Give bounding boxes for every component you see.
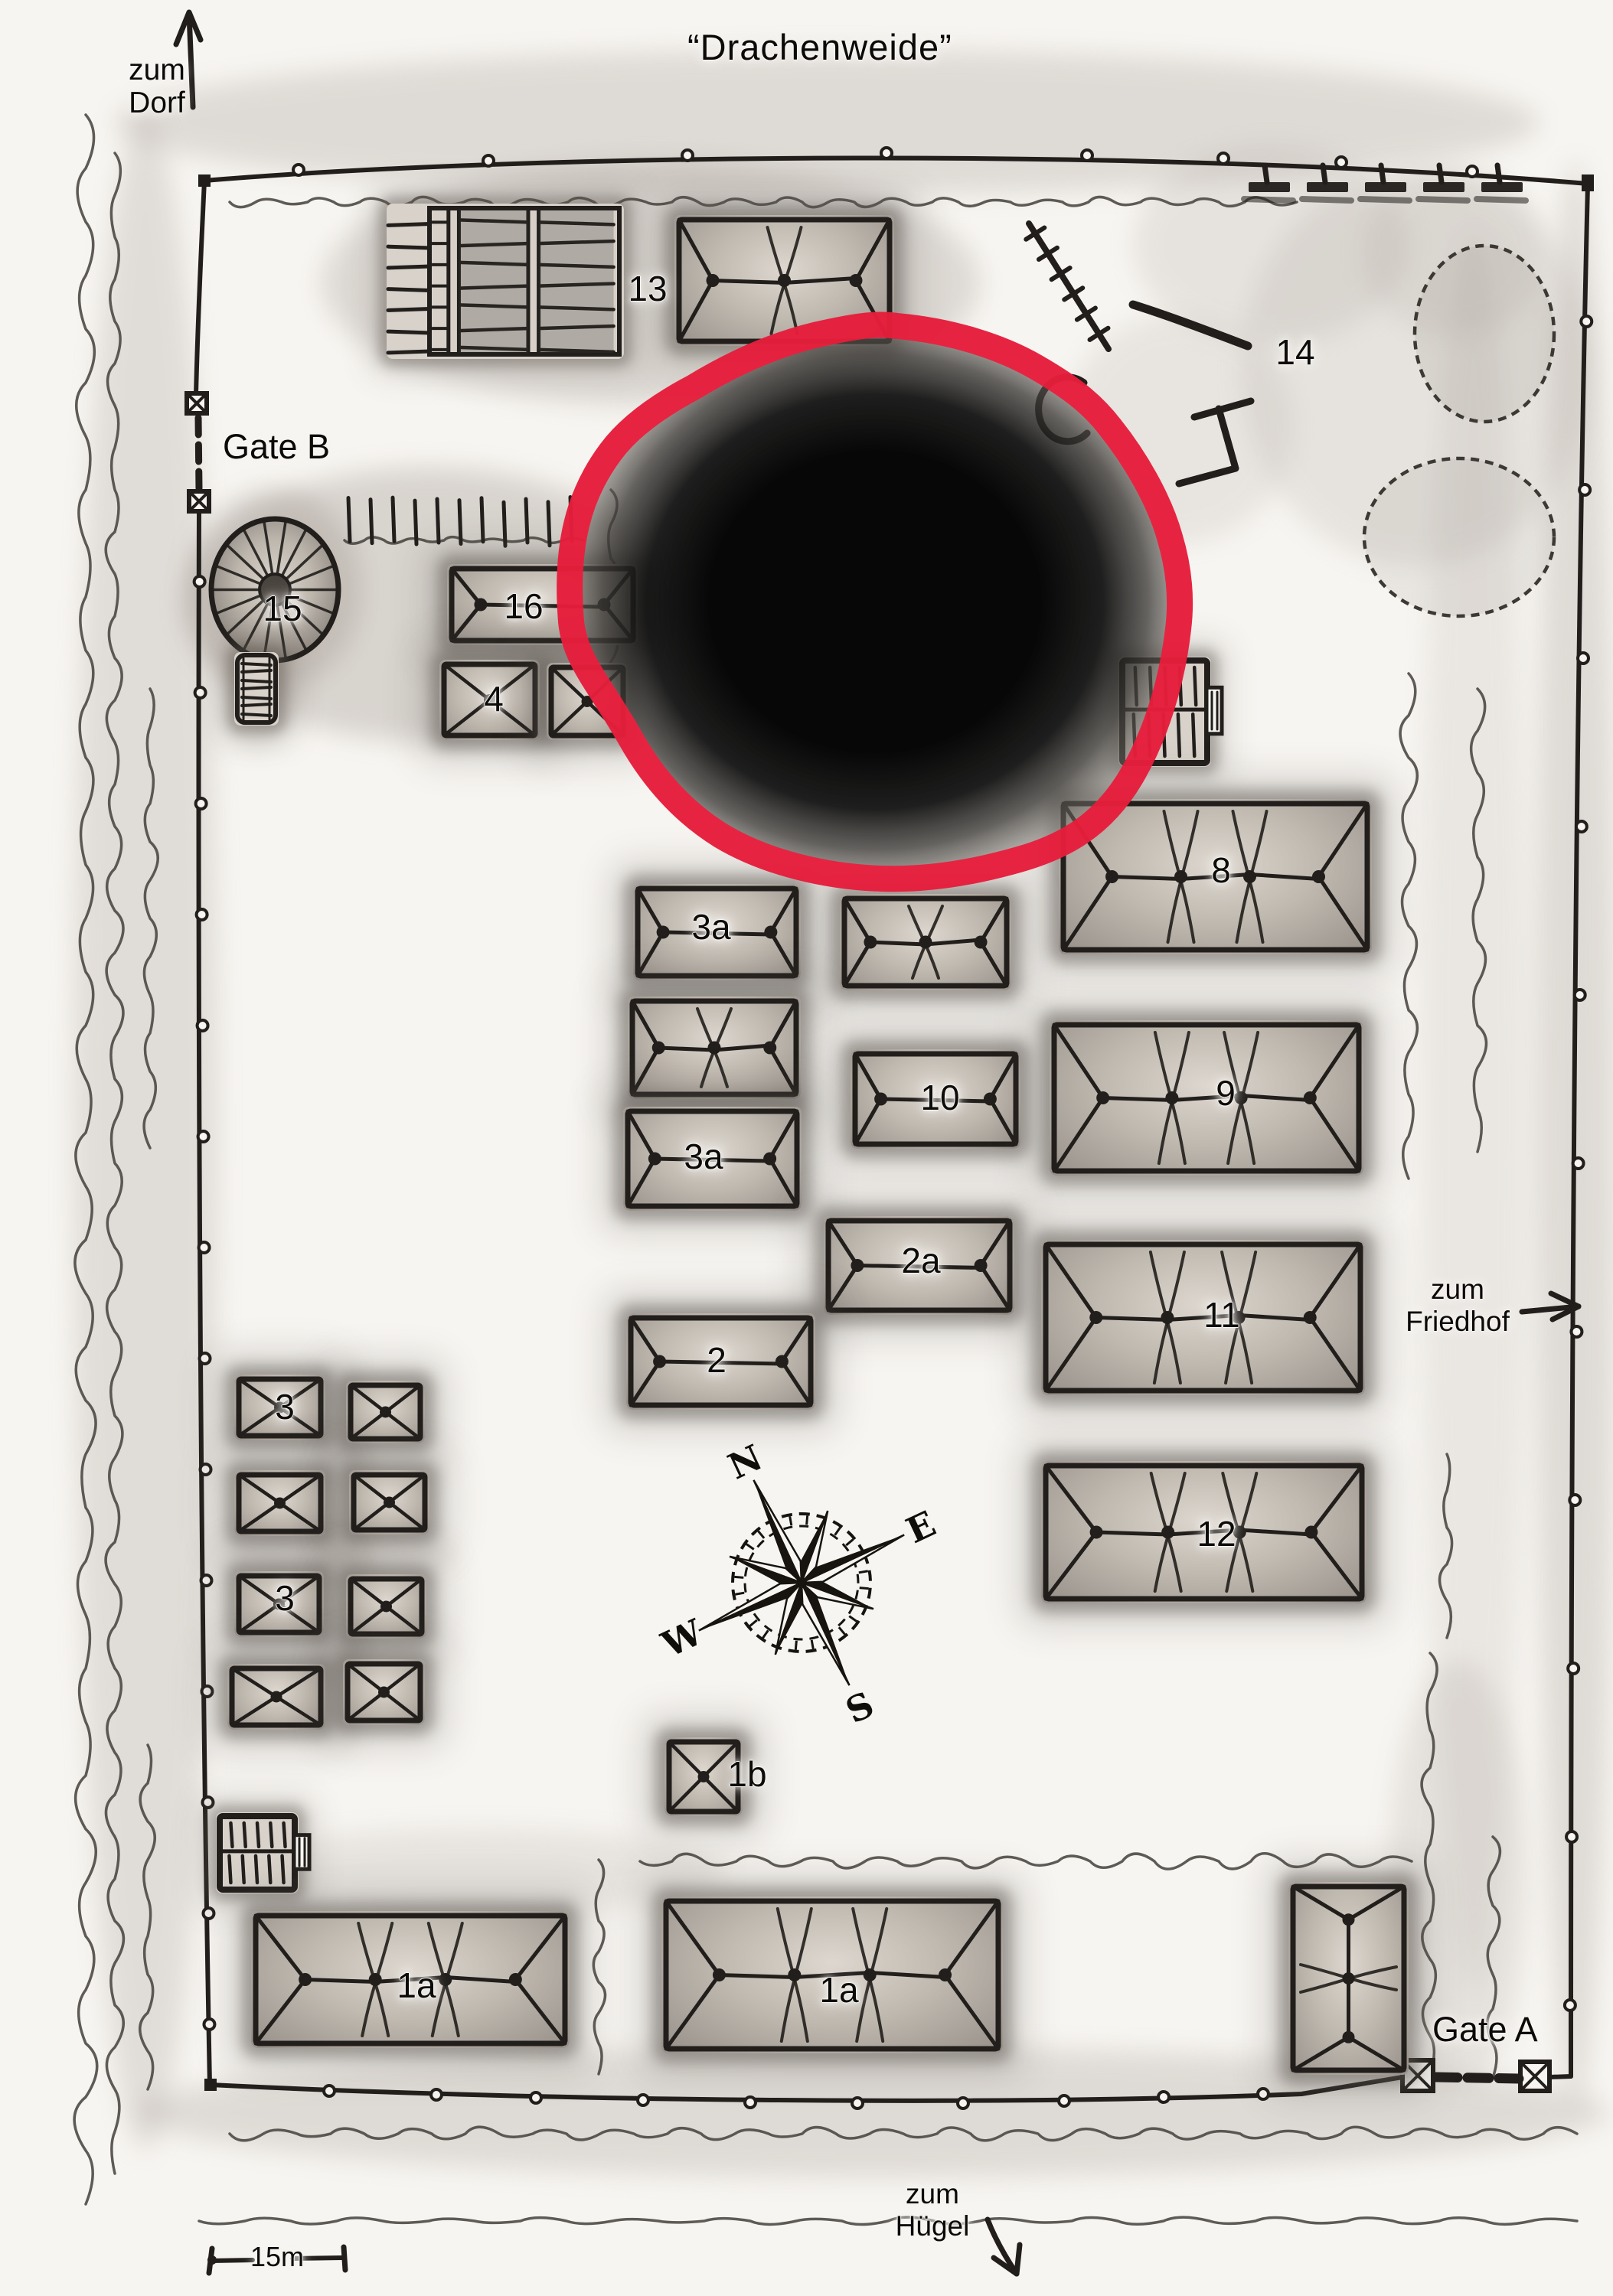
compass-w: W [655, 1611, 710, 1666]
compass-s: S [840, 1684, 880, 1732]
dorf-line2: Dorf [100, 86, 214, 119]
scale-bar-label: 15m [250, 2241, 304, 2273]
gate-b-label: Gate B [223, 427, 330, 467]
compass-rose: N E S W [637, 1418, 966, 1747]
compass-e: E [900, 1502, 942, 1551]
direction-label-huegel: zum Hügel [868, 2178, 997, 2242]
text-labels-layer: “Drachenweide” zum Dorf Gate B zum Fried… [0, 0, 1613, 2296]
huegel-line1: zum [868, 2178, 997, 2210]
dorf-line1: zum [100, 54, 214, 86]
compass-n: N [722, 1437, 769, 1488]
map-title: “Drachenweide” [687, 26, 952, 68]
friedhof-line1: zum [1393, 1274, 1522, 1306]
hand-drawn-camp-map: 13141516483a1093a2a11212331b1a1a “Drache… [0, 0, 1613, 2296]
direction-label-friedhof: zum Friedhof [1393, 1274, 1522, 1338]
huegel-line2: Hügel [868, 2210, 997, 2242]
compass-star [651, 1432, 952, 1733]
direction-label-dorf: zum Dorf [100, 54, 214, 119]
gate-a-label: Gate A [1432, 2010, 1538, 2050]
friedhof-line2: Friedhof [1393, 1306, 1522, 1338]
